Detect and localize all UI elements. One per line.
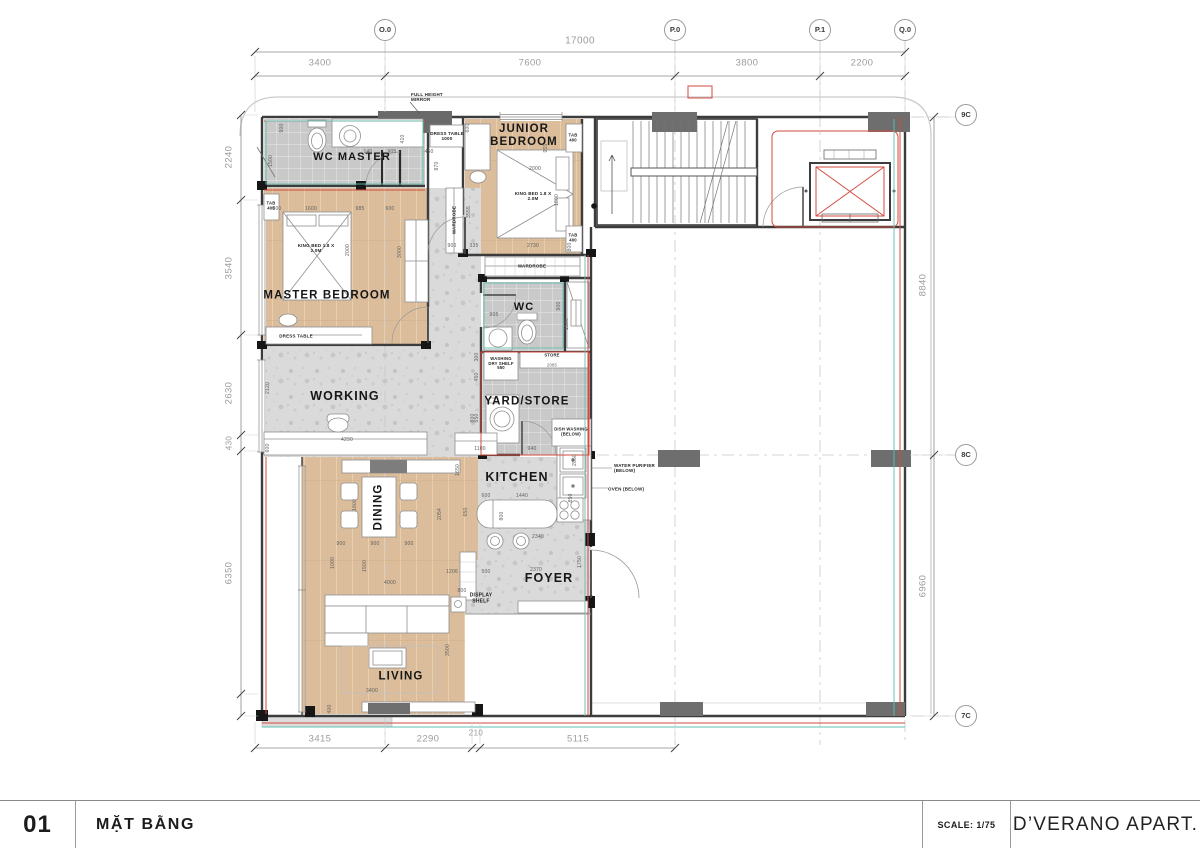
sheet-number: 01 bbox=[0, 801, 76, 848]
sheet-title: MẶT BẰNG bbox=[76, 801, 922, 848]
title-block: 01 MẶT BẰNG SCALE: 1/75 D’VERANO APART. bbox=[0, 800, 1200, 848]
floor-plan-drawing bbox=[0, 0, 1200, 848]
floor-plan-page: O.0P.0P.1Q.09C8C7C1700034007600380022002… bbox=[0, 0, 1200, 848]
stairs bbox=[601, 121, 803, 227]
project-name: D’VERANO APART. bbox=[1010, 801, 1200, 848]
scale-label: SCALE: 1/75 bbox=[922, 801, 1010, 848]
